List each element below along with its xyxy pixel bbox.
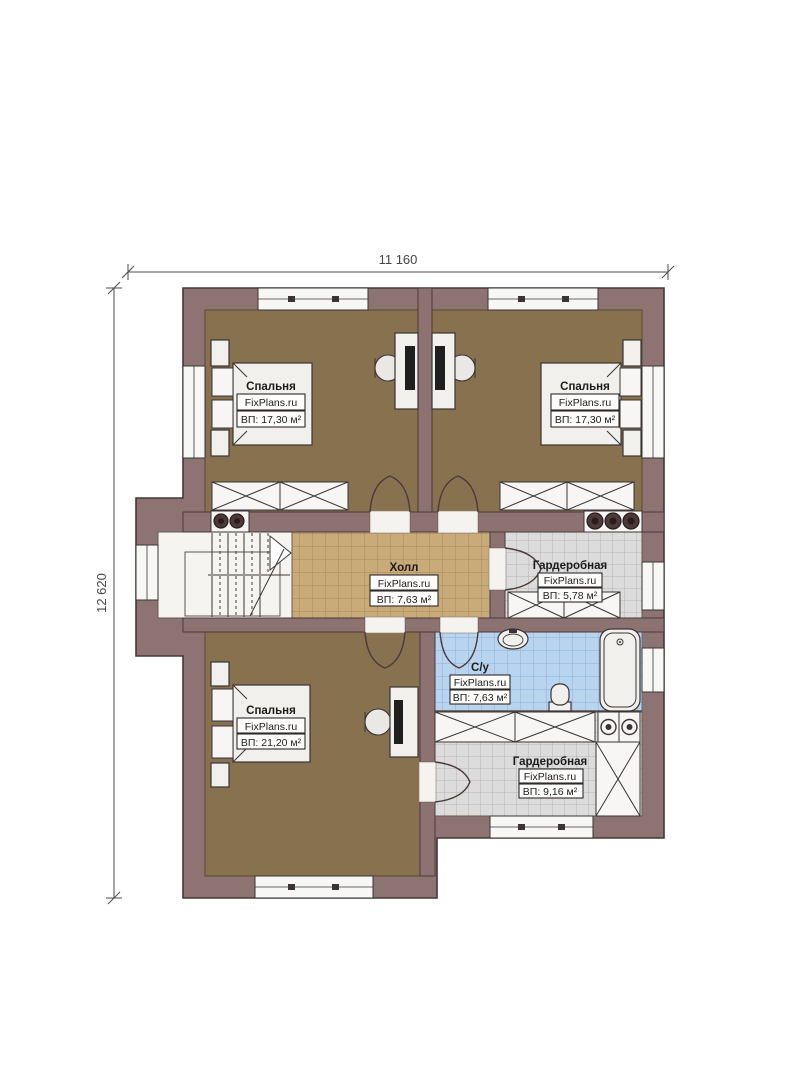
- dimension-height-label: 12 620: [94, 573, 109, 613]
- room-label-bedroom-top-right: Спальня FixPlans.ru ВП: 17,30 м²: [551, 381, 619, 427]
- toilet-symbol: [549, 684, 571, 711]
- closet-cabinet: [435, 712, 595, 742]
- washer-dryer-symbol: [598, 712, 640, 742]
- room-area: ВП: 17,30 м²: [555, 414, 616, 426]
- floor-plan-svg: Спальня FixPlans.ru ВП: 17,30 м² Спальня…: [0, 0, 792, 1080]
- room-area: ВП: 17,30 м²: [241, 414, 302, 426]
- room-name: Гардеробная: [513, 756, 587, 768]
- room-brand: FixPlans.ru: [245, 721, 298, 733]
- window: [183, 366, 205, 458]
- dimension-height: 12 620: [94, 282, 122, 904]
- window: [642, 648, 664, 692]
- room-brand: FixPlans.ru: [378, 578, 431, 590]
- window: [488, 288, 598, 310]
- room-area: ВП: 7,63 м²: [377, 594, 432, 606]
- room-area: ВП: 7,63 м²: [453, 692, 508, 704]
- window: [490, 816, 593, 838]
- window: [258, 288, 368, 310]
- room-brand: FixPlans.ru: [524, 771, 577, 783]
- monitor: [435, 346, 445, 390]
- dimension-width-label: 11 160: [379, 252, 418, 267]
- room-label-wardrobe-lower: Гардеробная FixPlans.ru ВП: 9,16 м²: [513, 756, 587, 798]
- closet-cabinet: [212, 482, 348, 510]
- monitor: [405, 346, 415, 390]
- room-label-bedroom-top-left: Спальня FixPlans.ru ВП: 17,30 м²: [237, 381, 305, 427]
- window: [255, 876, 373, 898]
- room-name: Холл: [390, 562, 419, 574]
- monitor: [394, 700, 403, 744]
- room-name: С/у: [471, 662, 490, 674]
- closet-cabinet: [596, 742, 640, 816]
- room-area: ВП: 5,78 м²: [543, 590, 598, 602]
- room-name: Спальня: [246, 381, 296, 393]
- room-area: ВП: 21,20 м²: [241, 737, 302, 749]
- room-brand: FixPlans.ru: [544, 575, 597, 587]
- window: [136, 545, 158, 600]
- room-brand: FixPlans.ru: [454, 677, 507, 689]
- office-chair: [365, 709, 391, 735]
- sink-symbol: [498, 629, 528, 649]
- room-area: ВП: 9,16 м²: [523, 786, 578, 798]
- room-name: Гардеробная: [533, 560, 607, 572]
- window: [642, 366, 664, 458]
- room-brand: FixPlans.ru: [559, 397, 612, 409]
- window: [642, 562, 664, 610]
- room-label-bedroom-bottom: Спальня FixPlans.ru ВП: 21,20 м²: [237, 705, 305, 749]
- floor-plan-page: Спальня FixPlans.ru ВП: 17,30 м² Спальня…: [0, 0, 792, 1080]
- dimension-width: 11 160: [122, 252, 674, 280]
- room-brand: FixPlans.ru: [245, 397, 298, 409]
- room-name: Спальня: [560, 381, 610, 393]
- bathtub-symbol: [600, 629, 640, 711]
- room-label-wardrobe-upper: Гардеробная FixPlans.ru ВП: 5,78 м²: [533, 560, 607, 602]
- room-name: Спальня: [246, 705, 296, 717]
- closet-cabinet: [500, 482, 634, 510]
